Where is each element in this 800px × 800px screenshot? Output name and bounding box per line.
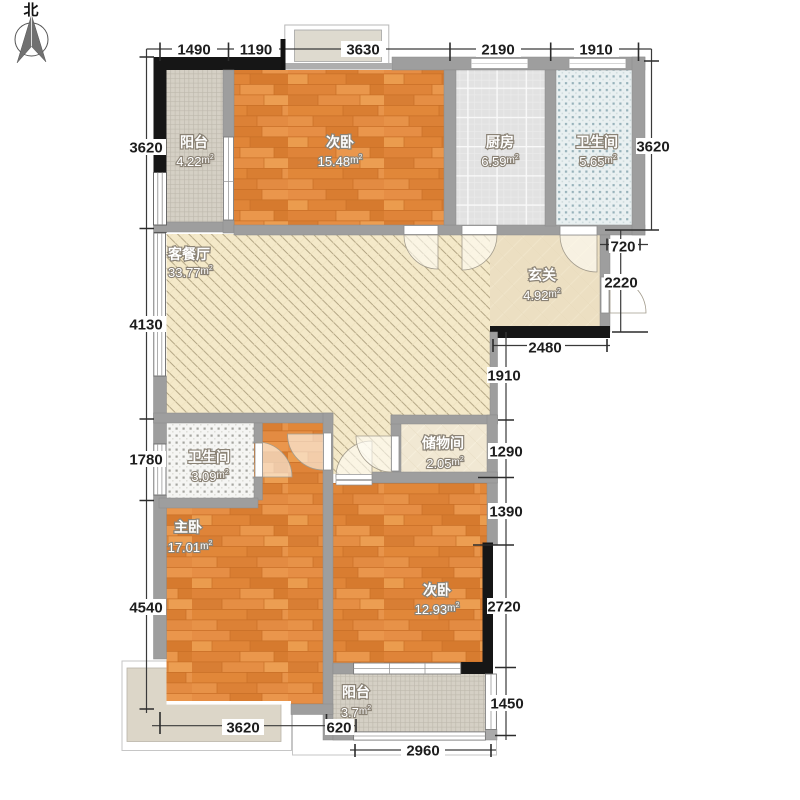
svg-text:卫生间: 卫生间 [576, 134, 618, 150]
svg-text:1390: 1390 [489, 504, 522, 521]
svg-text:620: 620 [326, 720, 351, 737]
svg-text:720: 720 [610, 239, 635, 256]
svg-text:1910: 1910 [579, 42, 612, 59]
svg-text:次卧: 次卧 [423, 582, 451, 598]
svg-text:1490: 1490 [177, 42, 210, 59]
svg-text:3620: 3620 [129, 140, 162, 157]
svg-text:2720: 2720 [487, 599, 520, 616]
svg-text:次卧: 次卧 [326, 134, 354, 150]
svg-text:储物间: 储物间 [421, 435, 464, 451]
svg-text:2220: 2220 [604, 275, 637, 292]
svg-text:3630: 3630 [346, 42, 379, 59]
svg-text:1450: 1450 [490, 696, 523, 713]
svg-text:玄关: 玄关 [528, 267, 556, 283]
svg-text:1190: 1190 [240, 42, 273, 59]
svg-text:2480: 2480 [528, 340, 561, 357]
svg-text:3620: 3620 [636, 139, 669, 156]
svg-text:4540: 4540 [129, 600, 162, 617]
svg-text:主卧: 主卧 [174, 519, 202, 535]
svg-text:厨房: 厨房 [486, 134, 514, 150]
svg-text:3620: 3620 [226, 720, 259, 737]
svg-text:4130: 4130 [129, 317, 162, 334]
svg-text:卫生间: 卫生间 [188, 449, 230, 465]
svg-text:1780: 1780 [129, 452, 162, 469]
svg-text:客餐厅: 客餐厅 [167, 246, 210, 262]
svg-text:2960: 2960 [406, 743, 439, 760]
svg-text:阳台: 阳台 [342, 684, 370, 700]
svg-text:阳台: 阳台 [180, 134, 208, 150]
svg-text:1290: 1290 [489, 444, 522, 461]
svg-text:1910: 1910 [487, 368, 520, 385]
svg-text:2190: 2190 [481, 42, 514, 59]
